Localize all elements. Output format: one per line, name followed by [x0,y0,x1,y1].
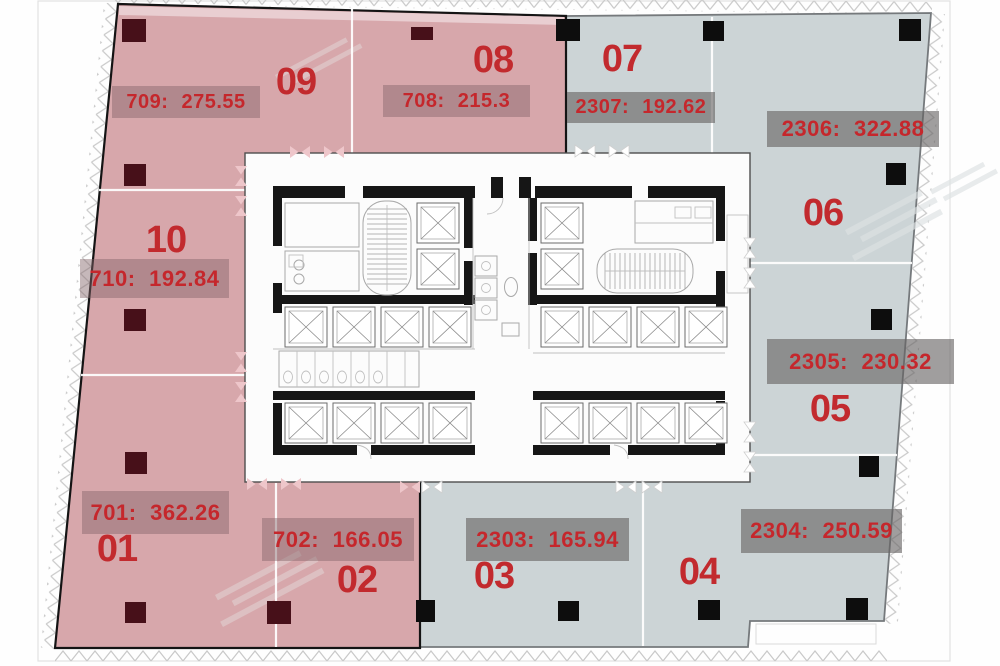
unit-number-06: 06 [796,194,850,232]
area-label-text: 709: 275.55 [126,91,245,114]
area-label-710: 710: 192.84 [80,259,229,298]
area-label-text: 2305: 230.32 [789,349,932,375]
area-label-text: 701: 362.26 [91,500,221,526]
area-label-709: 709: 275.55 [112,86,260,118]
area-label-2304: 2304: 250.59 [741,509,902,553]
unit-number-09: 09 [269,63,323,101]
area-label-2307: 2307: 192.62 [567,92,715,123]
floor-plan-core [245,153,750,482]
area-label-2306: 2306: 322.88 [767,111,939,147]
area-label-text: 2307: 192.62 [576,96,707,119]
unit-number-04: 04 [672,553,726,591]
area-label-708: 708: 215.3 [383,85,530,117]
area-label-text: 2303: 165.94 [476,527,619,553]
unit-number-07: 07 [595,40,649,78]
unit-number-02: 02 [330,561,384,599]
area-label-text: 2306: 322.88 [782,116,925,142]
floor-plan-page: 709: 275.55 708: 215.3 2307: 192.62 2306… [0,0,1000,666]
area-label-text: 2304: 250.59 [750,518,893,544]
area-label-702: 702: 166.05 [262,518,414,561]
area-label-2305: 2305: 230.32 [767,339,954,384]
unit-number-08: 08 [466,41,520,79]
unit-number-10: 10 [139,221,193,259]
area-label-text: 702: 166.05 [273,527,403,553]
area-label-text: 708: 215.3 [403,90,511,113]
unit-number-05: 05 [803,390,857,428]
area-label-text: 710: 192.84 [90,266,220,292]
unit-number-01: 01 [90,530,144,568]
unit-number-03: 03 [467,557,521,595]
